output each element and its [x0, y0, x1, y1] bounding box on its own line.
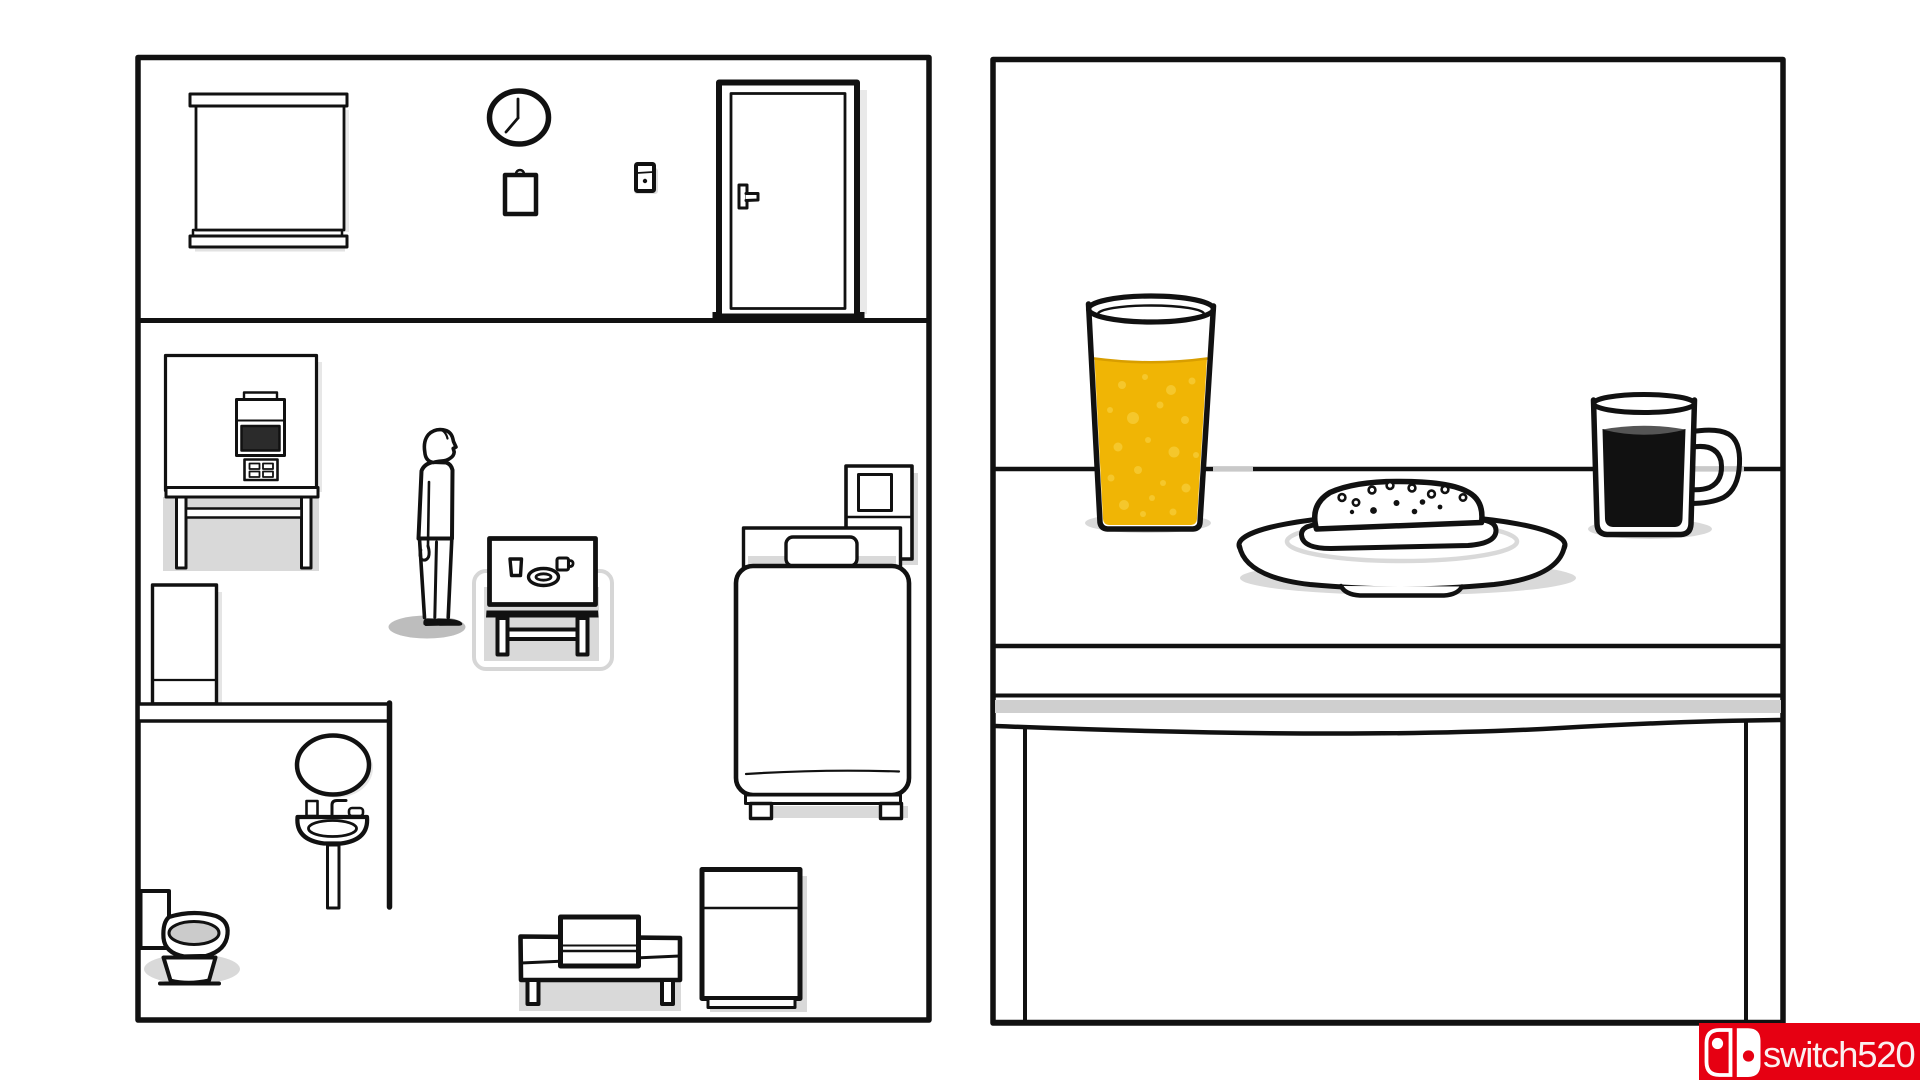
svg-text:switch520: switch520 [1763, 1034, 1915, 1075]
